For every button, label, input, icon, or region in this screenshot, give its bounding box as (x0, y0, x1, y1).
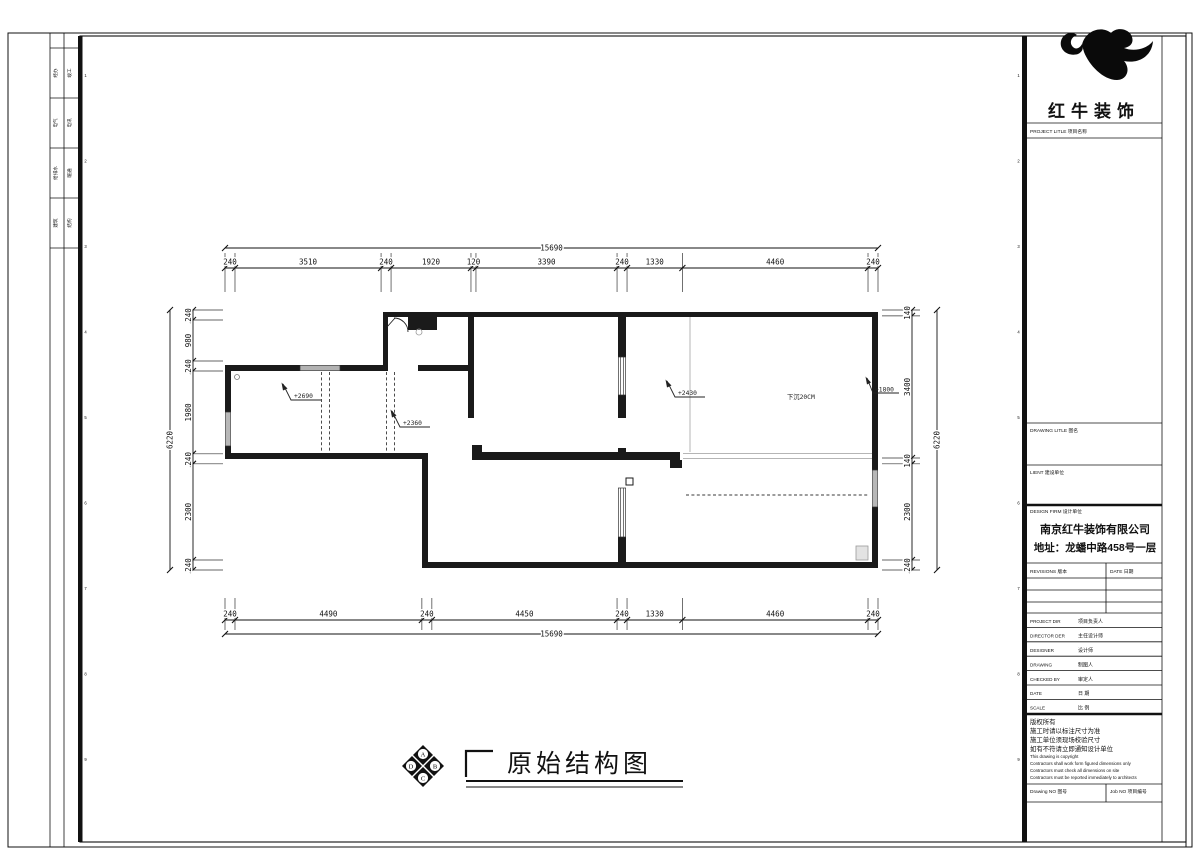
company-address: 地址：龙蟠中路458号一层 (1034, 541, 1157, 554)
dimension-text: 240 (866, 258, 880, 267)
personnel-label-zh: 日 期 (1078, 691, 1089, 697)
margin-number: 6 (1017, 501, 1020, 506)
windows (225, 357, 878, 537)
discipline-label: 暖通 (66, 168, 73, 178)
margin-grid-numbers: 112233445566778899 (84, 73, 1020, 762)
discipline-label: 电讯 (66, 118, 73, 128)
dimension-text: 140 (903, 454, 912, 468)
dimension-text: 15690 (540, 630, 563, 639)
bull-logo-icon (1061, 29, 1153, 80)
plan-annotations: +2690 +2360 +2430 +1800 下沉20CM (282, 377, 900, 428)
brand-name: 红牛装饰 (1048, 101, 1140, 121)
project-title-label: PROJECT LITLE 项目名称 (1030, 128, 1087, 135)
dimension-text: 240 (866, 610, 880, 619)
binding-bar (78, 36, 83, 842)
wall (422, 459, 428, 562)
margin-number: 9 (1017, 757, 1020, 762)
compass-letter: D (409, 763, 414, 770)
revisions-date-label: DATE 日期 (1110, 569, 1134, 575)
wall (422, 562, 878, 568)
revisions-label: REVISIONS 版本 (1030, 568, 1067, 575)
personnel-label-zh: 项目负责人 (1078, 618, 1103, 625)
dimension-text: 3390 (537, 258, 556, 267)
dimension-text: 240 (615, 610, 629, 619)
compass-letter: A (421, 751, 426, 758)
wall (472, 445, 482, 452)
margin-number: 7 (1017, 586, 1020, 591)
margin-number: 2 (84, 159, 87, 164)
personnel-label-en: CHECKED BY (1030, 677, 1060, 682)
margin-number: 4 (1017, 330, 1020, 335)
dimension-text: 240 (379, 258, 393, 267)
wall (225, 371, 231, 412)
discipline-label: 给排水 (52, 166, 59, 180)
margin-number: 5 (1017, 415, 1020, 420)
wall (340, 365, 388, 371)
margin-number: 6 (84, 501, 87, 506)
personnel-label-zh: 制图人 (1078, 661, 1093, 668)
dimension-text: 1920 (422, 258, 441, 267)
wall (225, 365, 300, 371)
compass-letter: B (433, 763, 438, 770)
dimension-text: 240 (420, 610, 434, 619)
personnel-label-en: DATE (1030, 691, 1042, 696)
copyright-line-zh: 如有不符请立即通知设计单位 (1030, 744, 1114, 753)
dimension-text: 240 (184, 359, 193, 373)
dimension-text: 3510 (299, 258, 318, 267)
discipline-label: 竣工 (66, 68, 73, 78)
door-hinge-marker (626, 478, 633, 485)
personnel-label-en: DRAWING (1030, 662, 1052, 667)
copyright-line-zh: 版权所有 (1030, 717, 1056, 726)
dimension-text: 980 (184, 333, 193, 347)
job-no-label: Job NO 项目编号 (1110, 788, 1147, 795)
wall (670, 460, 682, 468)
elevation-label: +2360 (403, 420, 422, 427)
personnel-label-zh: 主任设计师 (1078, 633, 1103, 640)
drawing-title: 原始结构图 (507, 750, 652, 778)
dimension-text: 240 (184, 452, 193, 466)
discipline-label: 经办 (52, 68, 59, 78)
entry-door-header (408, 317, 437, 330)
dimension-text: 3400 (903, 377, 912, 396)
client-label: LIENT 建设单位 (1030, 469, 1064, 476)
dimension-text: 6220 (933, 430, 942, 449)
copyright-line-en: This drawing is copyright (1030, 754, 1079, 759)
wall (618, 317, 626, 357)
wall (618, 537, 626, 562)
personnel-label-zh: 审定人 (1078, 676, 1093, 683)
dimension-text: 4450 (515, 610, 534, 619)
margin-number: 1 (1017, 73, 1020, 78)
elevation-label: +2430 (678, 390, 697, 397)
copyright-line-en: Contractors must check all dimensions on… (1030, 768, 1120, 773)
margin-number: 3 (1017, 244, 1020, 249)
copyright-line-en: Contractors must be reported immediately… (1030, 775, 1137, 780)
dimension-chains: 2403510240192012033902401330446024015690… (166, 244, 942, 639)
discipline-label: 结构 (66, 218, 73, 228)
elevation-label: +2690 (294, 393, 313, 400)
wall (472, 452, 680, 460)
copyright-block: 版权所有施工时请以标注尺寸为准施工单位须现场校验尺寸如有不符请立即通知设计单位T… (1030, 717, 1137, 780)
wall (383, 312, 878, 317)
title-block: 红牛装饰 PROJECT LITLE 项目名称 DRAWING LITLE 图名… (1027, 29, 1162, 842)
dimension-text: 240 (903, 558, 912, 572)
copyright-line-en: Contractors shall work form figured dime… (1030, 761, 1132, 766)
personnel-label-en: SCALE (1030, 706, 1045, 711)
drawing-title-label: DRAWING LITLE 图名 (1030, 427, 1078, 434)
dimension-text: 240 (223, 258, 237, 267)
dimension-text: 6220 (166, 430, 175, 449)
cad-sheet: 经办竣工电气电讯给排水暖通建筑结构 112233445566778899 (0, 0, 1200, 852)
personnel-rows: PROJECT DIR项目负责人DIRECTOR DER主任设计师DESIGNE… (1027, 618, 1162, 711)
dimension-text: 4490 (319, 610, 338, 619)
door-leaf (387, 318, 395, 327)
design-firm-label: DESIGN FIRM 设计单位 (1030, 508, 1082, 515)
beam-note: 下沉20CM (787, 393, 815, 401)
sheet-frame (8, 33, 1192, 847)
flue-column (856, 546, 868, 560)
floor-plan (225, 312, 878, 568)
personnel-label-zh: 设计师 (1078, 647, 1093, 654)
wall (383, 317, 388, 371)
elevation-label: +1800 (875, 387, 894, 394)
door-swing-arc (394, 318, 408, 332)
dimension-text: 2300 (184, 502, 193, 521)
wall (225, 446, 231, 453)
fixture-marker (235, 375, 240, 380)
company-name: 南京红牛装饰有限公司 (1040, 522, 1150, 536)
titleblock-separator (1022, 36, 1027, 842)
margin-number: 3 (84, 244, 87, 249)
wall (418, 365, 473, 371)
dimension-text: 240 (184, 558, 193, 572)
north-compass: A B C D (402, 745, 444, 787)
dimension-text: 1330 (646, 258, 665, 267)
margin-number: 7 (84, 586, 87, 591)
wall (872, 317, 878, 470)
dimension-text: 1330 (646, 610, 665, 619)
wall (872, 507, 878, 562)
margin-number: 8 (1017, 672, 1020, 677)
compass-letter: C (421, 775, 425, 782)
dimension-text: 2300 (903, 502, 912, 521)
discipline-label: 建筑 (52, 218, 59, 228)
dimension-text: 120 (467, 258, 481, 267)
dimension-text: 240 (223, 610, 237, 619)
dimension-text: 15690 (540, 244, 563, 253)
margin-number: 1 (84, 73, 87, 78)
wall (225, 453, 428, 459)
margin-number: 5 (84, 415, 87, 420)
margin-number: 4 (84, 330, 87, 335)
dimension-text: 240 (184, 308, 193, 322)
wall (618, 395, 626, 418)
dimension-text: 240 (615, 258, 629, 267)
dimension-text: 140 (903, 306, 912, 320)
drawing-no-label: Drawing NO 图号 (1030, 789, 1067, 795)
personnel-label-en: DESIGNER (1030, 648, 1055, 653)
discipline-label: 电气 (52, 118, 58, 128)
drawing-title-area: A B C D 原始结构图 (402, 745, 683, 787)
dimension-text: 1980 (184, 403, 193, 422)
margin-number: 9 (84, 757, 87, 762)
dimension-text: 4460 (766, 258, 785, 267)
dimension-text: 4460 (766, 610, 785, 619)
personnel-label-zh: 比 例 (1078, 705, 1089, 712)
margin-number: 8 (84, 672, 87, 677)
copyright-line-zh: 施工时请以标注尺寸为准 (1030, 726, 1101, 735)
margin-number: 2 (1017, 159, 1020, 164)
personnel-label-en: DIRECTOR DER (1030, 634, 1066, 639)
copyright-line-zh: 施工单位须现场校验尺寸 (1030, 735, 1101, 744)
title-bracket (466, 751, 493, 777)
wall (468, 317, 474, 418)
personnel-label-en: PROJECT DIR (1030, 619, 1061, 624)
